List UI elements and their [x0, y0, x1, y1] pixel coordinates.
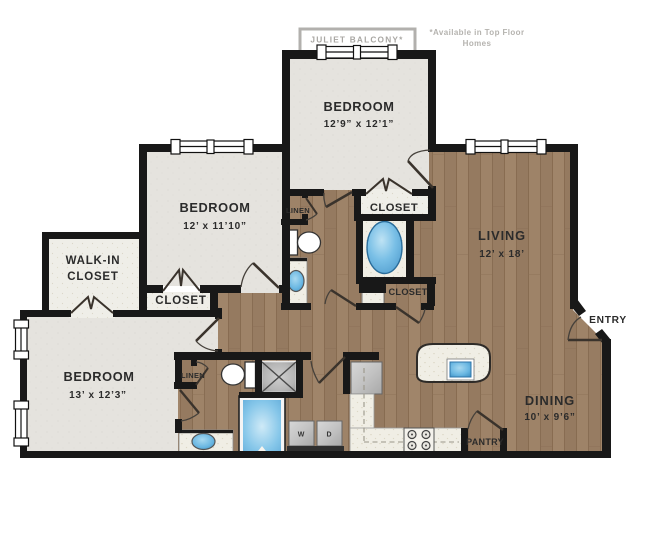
- svg-text:DINING: DINING: [525, 393, 575, 408]
- svg-text:CLOSET: CLOSET: [388, 287, 427, 297]
- svg-text:BEDROOM: BEDROOM: [179, 200, 250, 215]
- svg-text:WALK-IN: WALK-IN: [66, 255, 121, 267]
- svg-text:*Available in Top Floor: *Available in Top Floor: [430, 28, 525, 37]
- svg-text:BEDROOM: BEDROOM: [323, 99, 394, 114]
- svg-text:LIVING: LIVING: [478, 228, 526, 243]
- svg-text:CLOSET: CLOSET: [155, 295, 206, 307]
- svg-text:D: D: [326, 432, 331, 439]
- svg-text:ENTRY: ENTRY: [589, 315, 627, 326]
- svg-text:JULIET BALCONY*: JULIET BALCONY*: [310, 35, 403, 45]
- svg-text:W: W: [298, 432, 305, 439]
- svg-text:Homes: Homes: [463, 39, 492, 48]
- svg-text:12’ x 18’: 12’ x 18’: [479, 249, 525, 260]
- svg-text:CLOSET: CLOSET: [370, 202, 418, 214]
- svg-text:LINEN: LINEN: [181, 371, 205, 380]
- svg-text:PANTRY: PANTRY: [466, 437, 504, 447]
- svg-text:13’ x 12’3”: 13’ x 12’3”: [69, 390, 127, 401]
- svg-text:10’ x 9’6”: 10’ x 9’6”: [524, 412, 575, 423]
- svg-text:LINEN: LINEN: [286, 206, 310, 215]
- svg-text:CLOSET: CLOSET: [67, 271, 118, 283]
- svg-text:12’ x 11’10”: 12’ x 11’10”: [183, 221, 247, 232]
- svg-text:12’9” x 12’1”: 12’9” x 12’1”: [324, 119, 394, 130]
- svg-text:BEDROOM: BEDROOM: [63, 369, 134, 384]
